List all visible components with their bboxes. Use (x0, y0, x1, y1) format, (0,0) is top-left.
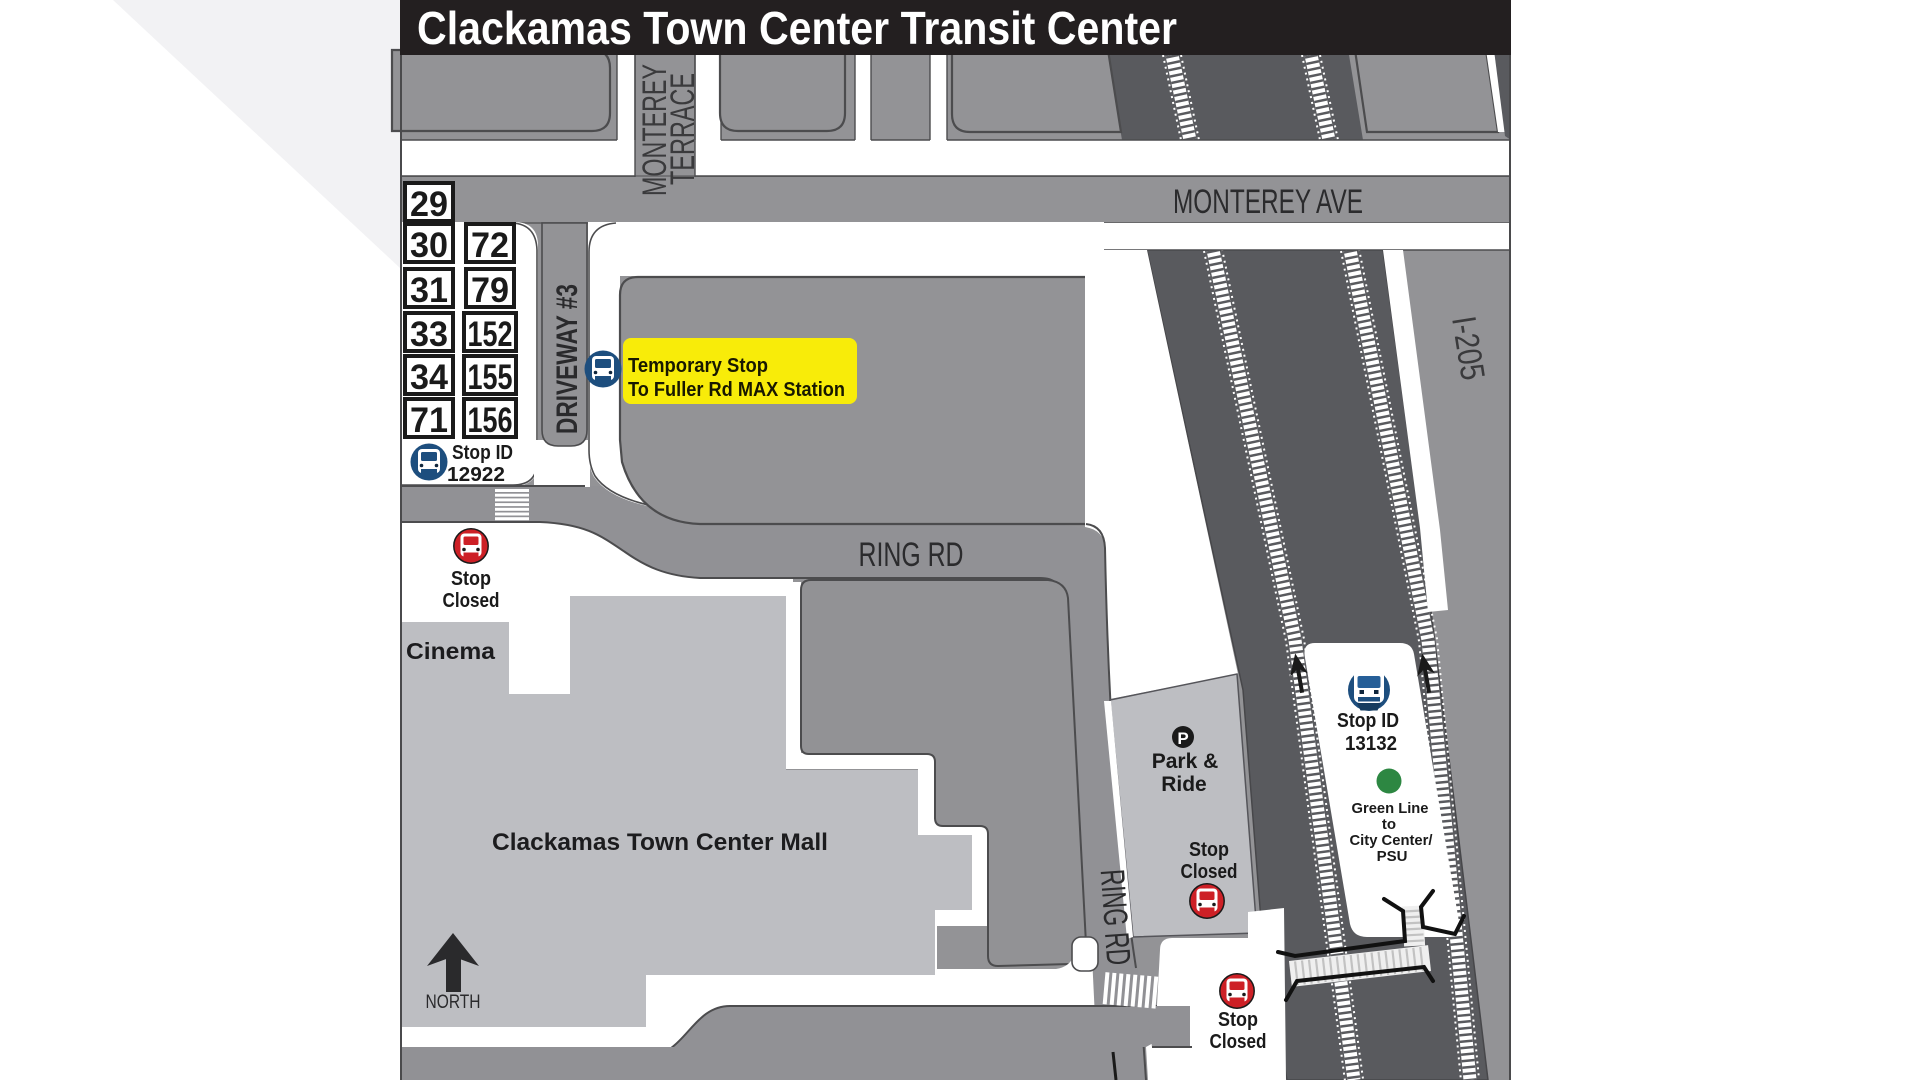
svg-text:Stop: Stop (1189, 839, 1229, 861)
svg-text:P: P (1177, 729, 1188, 748)
svg-text:PSU: PSU (1377, 848, 1408, 865)
svg-text:12922: 12922 (447, 464, 505, 486)
svg-text:Green Line: Green Line (1352, 800, 1429, 817)
svg-text:Stop: Stop (1218, 1009, 1258, 1031)
svg-text:30: 30 (410, 226, 448, 265)
svg-text:72: 72 (471, 226, 509, 265)
svg-text:Stop ID: Stop ID (1337, 710, 1399, 732)
svg-text:Temporary Stop: Temporary Stop (628, 355, 768, 377)
svg-text:Stop: Stop (451, 568, 491, 590)
svg-text:Park &: Park & (1152, 750, 1219, 773)
svg-text:Clackamas Town Center Mall: Clackamas Town Center Mall (492, 829, 828, 856)
svg-text:33: 33 (410, 315, 448, 354)
svg-text:79: 79 (471, 271, 509, 310)
svg-text:To Fuller Rd MAX Station: To Fuller Rd MAX Station (628, 379, 845, 401)
svg-text:to: to (1382, 816, 1396, 833)
svg-text:Closed: Closed (1181, 861, 1238, 883)
svg-text:Closed: Closed (443, 590, 500, 612)
svg-text:Cinema: Cinema (406, 638, 495, 664)
svg-text:156: 156 (468, 401, 513, 440)
svg-text:City Center/: City Center/ (1350, 832, 1434, 849)
svg-text:MONTEREY AVE: MONTEREY AVE (1173, 183, 1363, 221)
svg-text:NORTH: NORTH (426, 992, 481, 1013)
svg-text:Closed: Closed (1210, 1031, 1267, 1053)
svg-text:DRIVEWAY #3: DRIVEWAY #3 (551, 284, 584, 434)
svg-text:Clackamas Town Center Transit: Clackamas Town Center Transit Center (417, 2, 1177, 54)
svg-text:Ride: Ride (1161, 773, 1207, 796)
svg-text:Stop ID: Stop ID (452, 442, 513, 464)
svg-text:31: 31 (410, 271, 448, 310)
svg-text:TERRACE: TERRACE (664, 73, 702, 185)
svg-text:RING RD: RING RD (859, 536, 964, 574)
svg-text:71: 71 (410, 401, 448, 440)
svg-text:152: 152 (468, 315, 513, 354)
svg-text:29: 29 (410, 185, 448, 224)
svg-text:RING RD: RING RD (1093, 868, 1138, 966)
svg-text:155: 155 (468, 358, 513, 397)
svg-text:34: 34 (410, 358, 449, 397)
svg-text:13132: 13132 (1345, 733, 1397, 755)
